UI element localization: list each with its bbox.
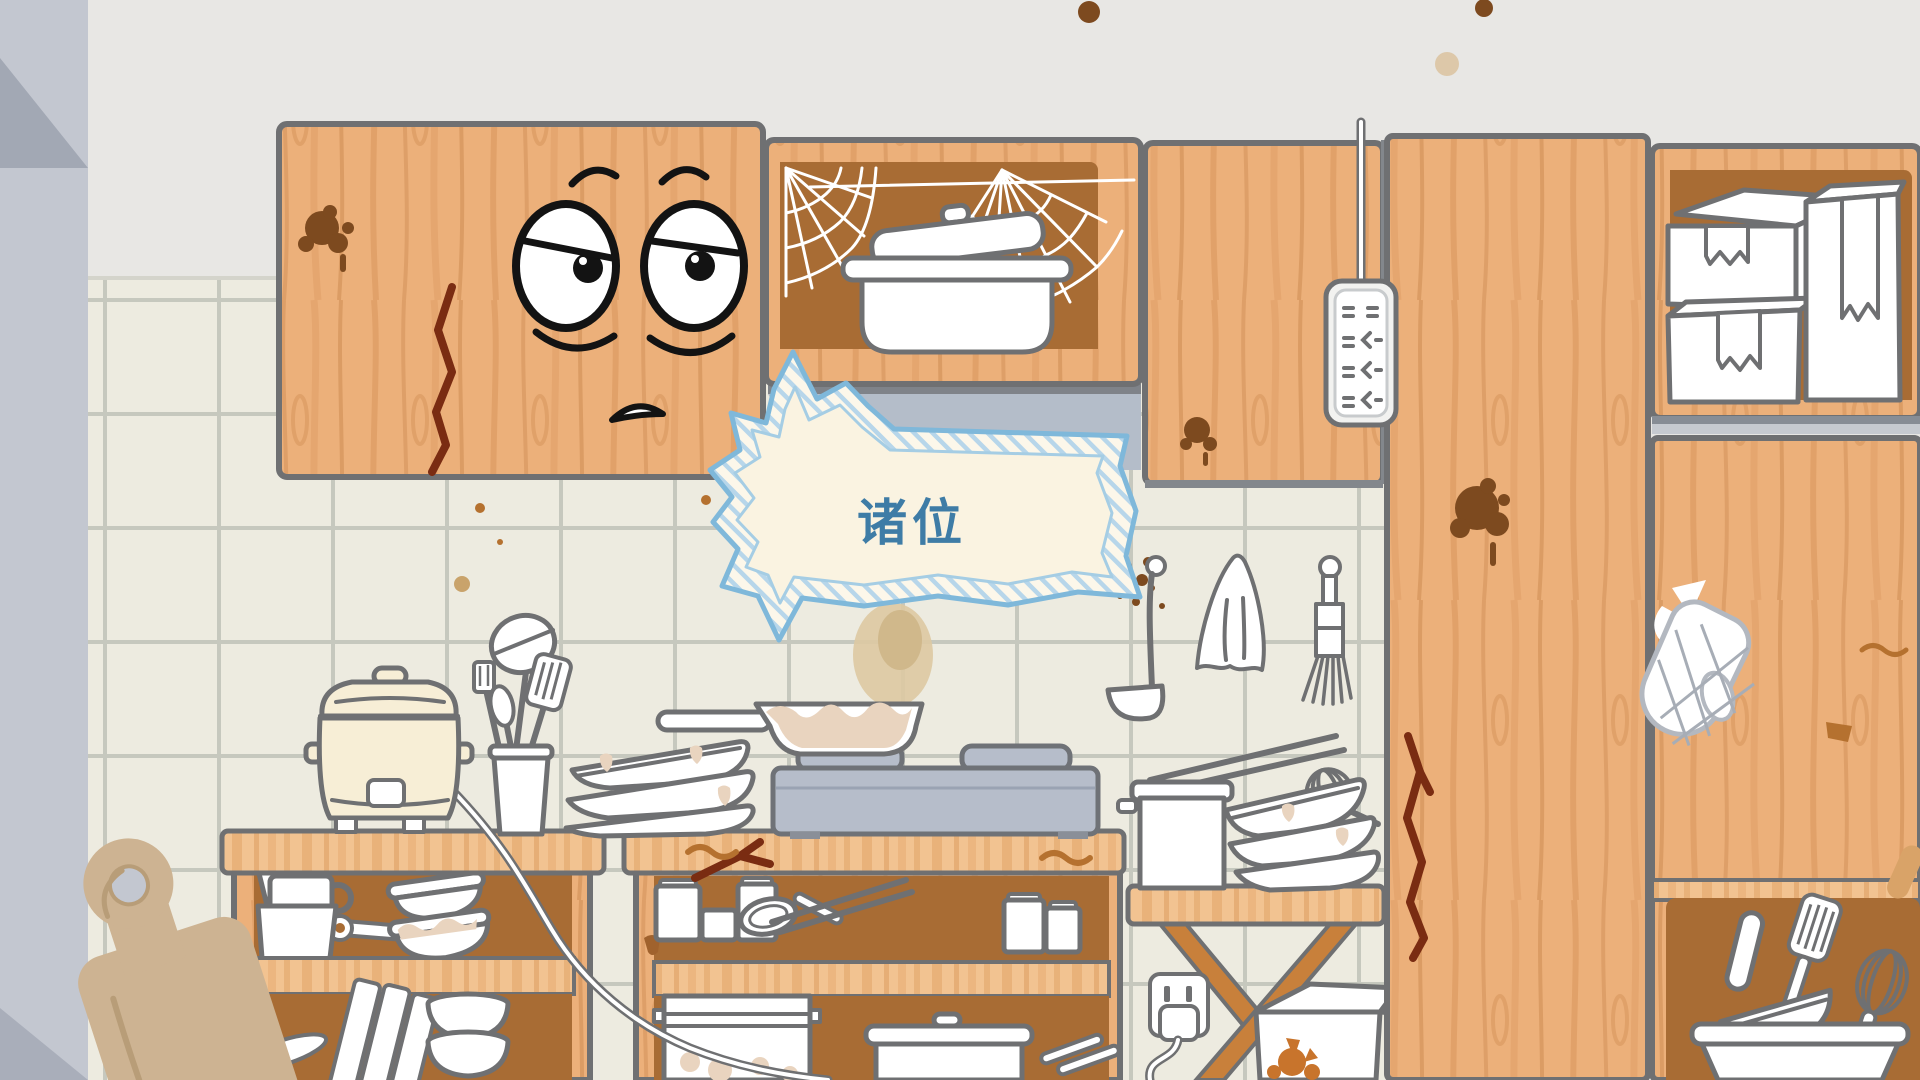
rice-cooker [306, 668, 472, 832]
plug [1160, 1006, 1198, 1040]
stacked-bowls [428, 994, 508, 1076]
pan-handle [658, 712, 770, 730]
tall-cabinet [1387, 136, 1648, 1080]
lidded-pot [866, 1014, 1032, 1080]
box-cabinet [1652, 146, 1920, 434]
angry-face-cabinet [279, 124, 763, 477]
cardboard-boxes [1668, 182, 1904, 402]
cup-body [494, 758, 548, 834]
kitchen-scene-canvas: 诸位 [0, 0, 1920, 1080]
middle-lower-cabinet [636, 868, 1120, 1080]
left-counter-top [222, 831, 604, 873]
kitchen-scene: 诸位 [0, 0, 1920, 1080]
left-lower-cabinet [234, 856, 590, 1080]
right-cabinet [1627, 438, 1920, 1080]
speech-text: 诸位 [857, 494, 967, 552]
open-cabinet-cobwebs [766, 140, 1141, 384]
cooker-panel [368, 780, 404, 806]
fork-head [474, 662, 494, 692]
